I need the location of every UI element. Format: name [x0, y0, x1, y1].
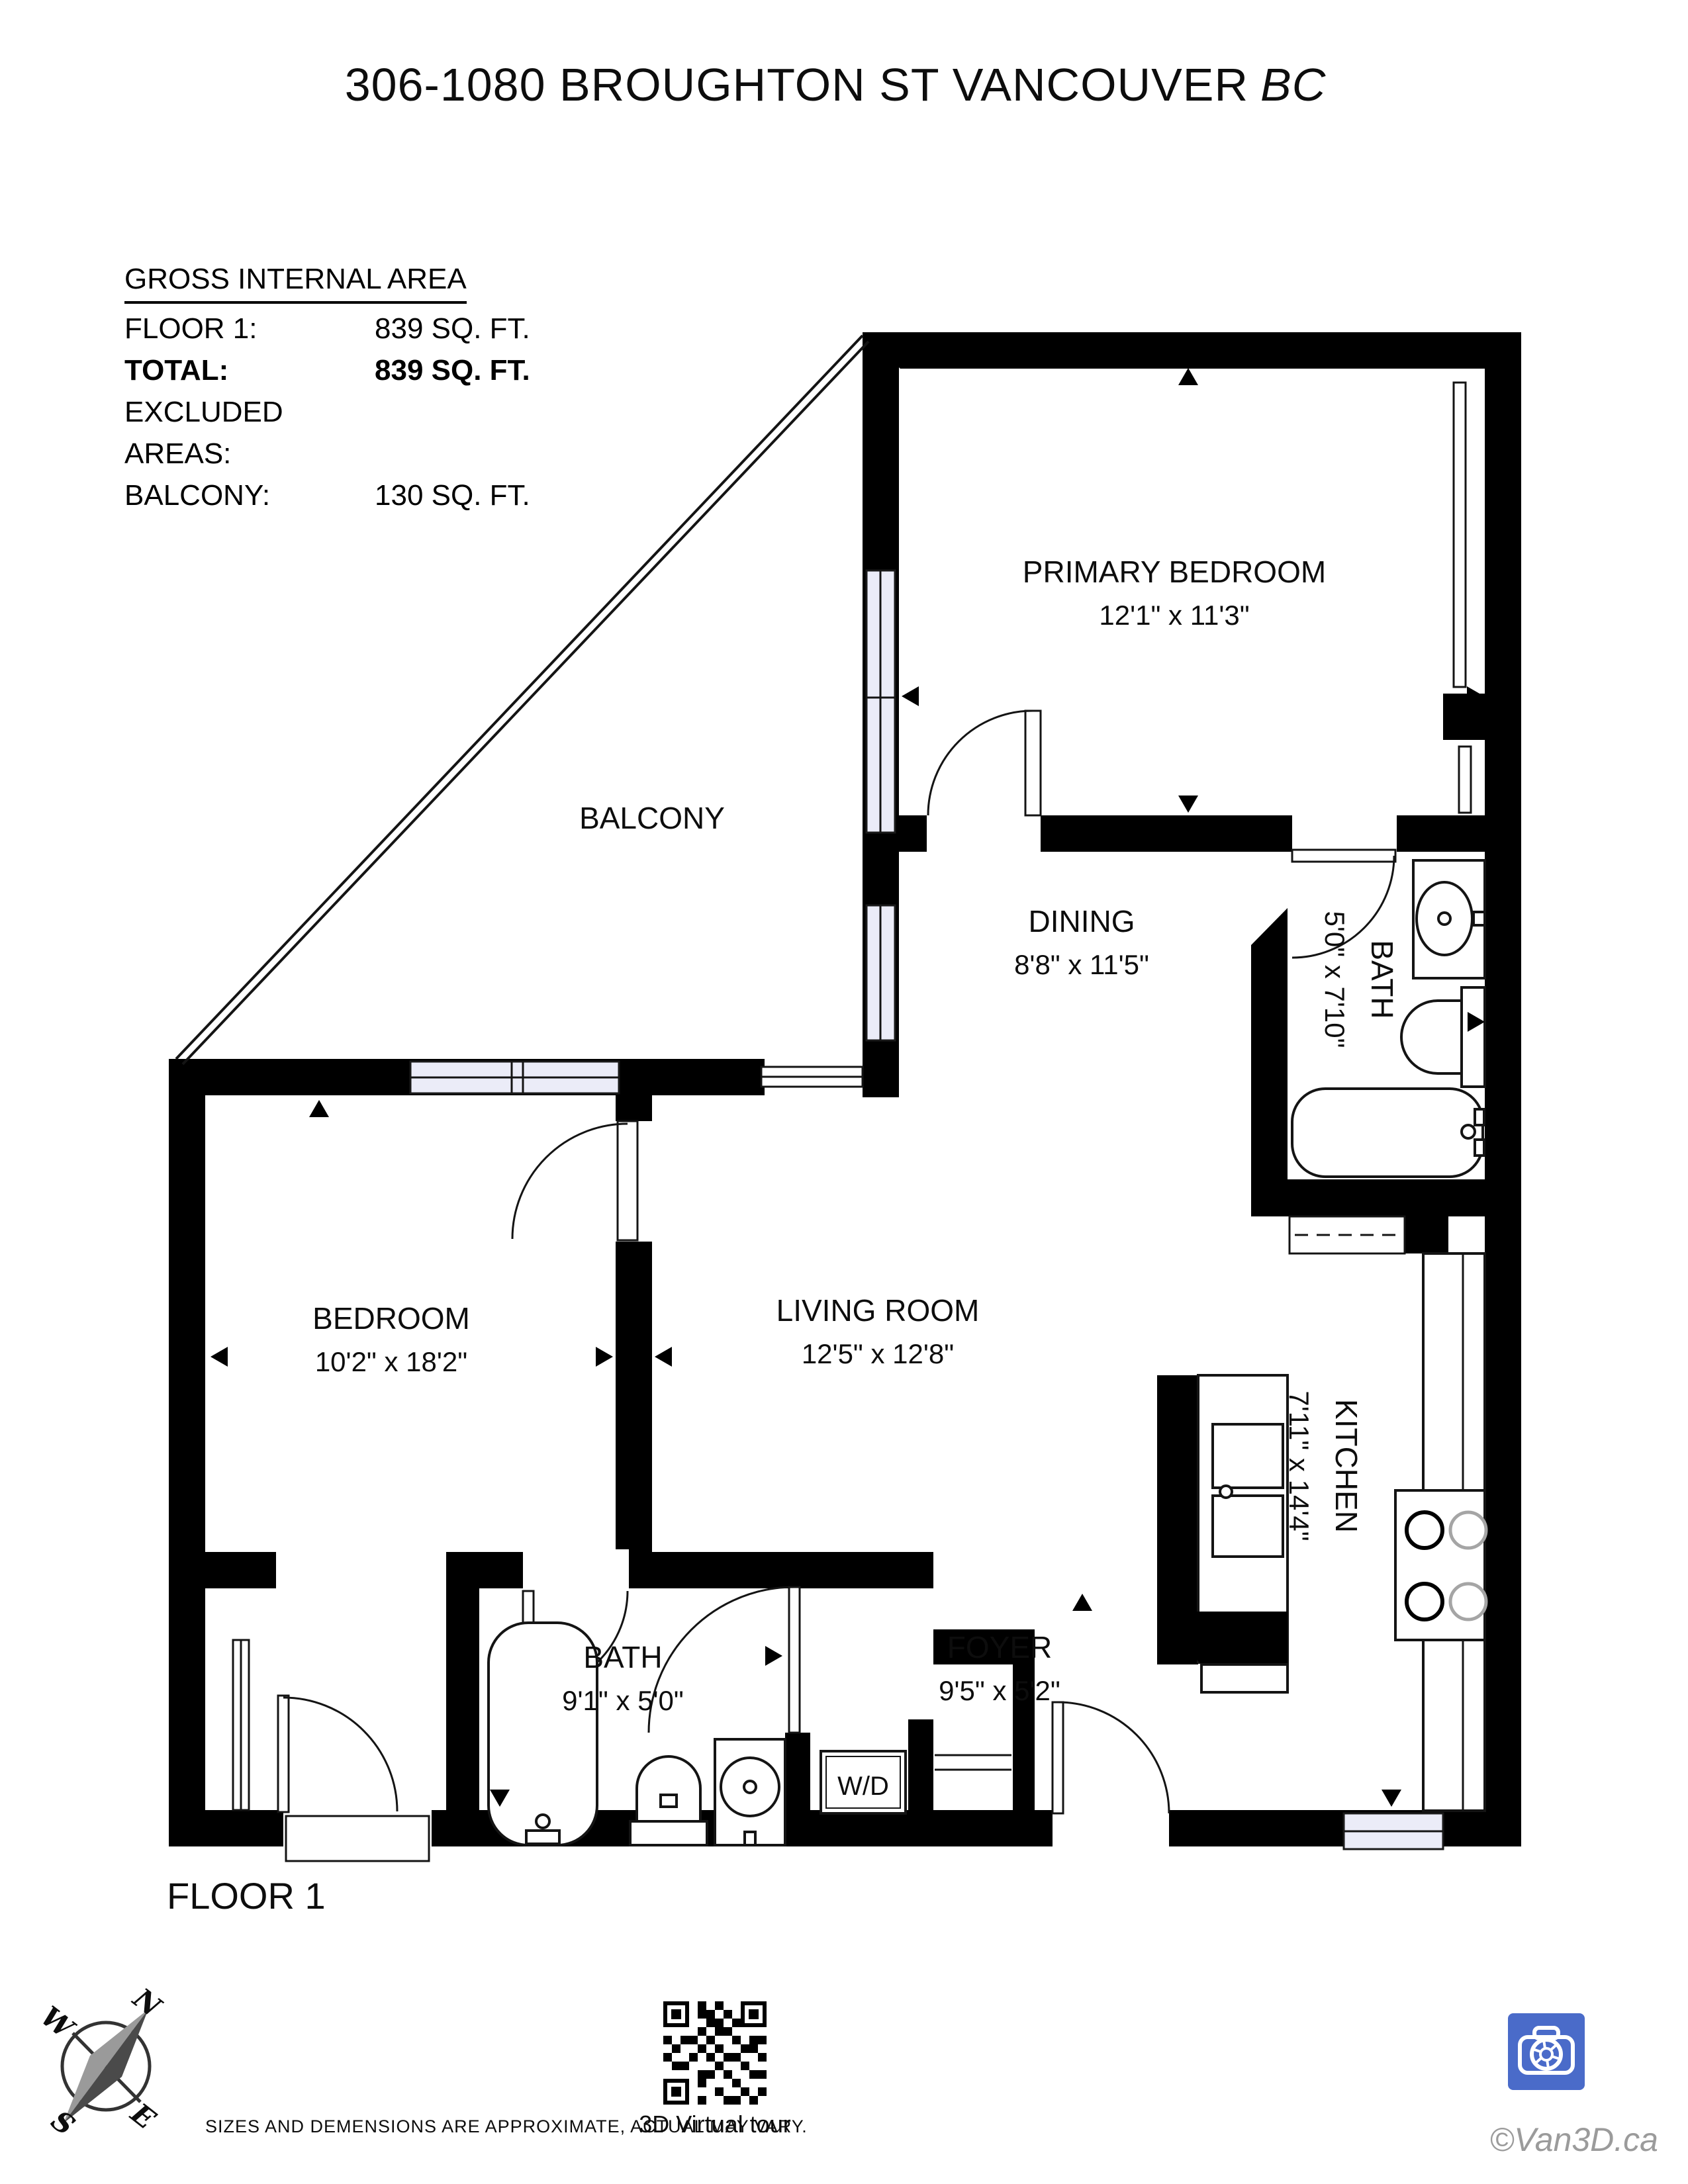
label-bath1: BATH: [1365, 940, 1399, 1019]
compass-n: N: [126, 1981, 168, 2023]
area-row-label: EXCLUDED AREAS:: [124, 391, 375, 475]
dims-living-room: 12'5" x 12'8": [802, 1338, 954, 1369]
island-sink: [1213, 1496, 1283, 1557]
bath2-toilet-tank: [630, 1821, 707, 1845]
label-foyer: FOYER: [947, 1630, 1052, 1664]
area-row-balcony: BALCONY: 130 SQ. FT.: [124, 475, 628, 516]
primary-bedroom-door: [1025, 711, 1041, 815]
closet-sliding-panel: [1459, 747, 1471, 813]
wall-left: [169, 1059, 205, 1846]
bath2-toilet-bowl: [637, 1756, 700, 1821]
kitchen-closet: [1289, 1216, 1405, 1253]
wall-bath2-left: [446, 1552, 479, 1812]
bedroom-nook-door: [278, 1696, 289, 1812]
label-primary-bedroom: PRIMARY BEDROOM: [1023, 555, 1326, 589]
label-living-room: LIVING ROOM: [776, 1293, 980, 1328]
wall-bedroom-nook-stub: [169, 1552, 276, 1588]
bath1-faucet: [1474, 912, 1485, 925]
primary-closet: [1454, 383, 1471, 813]
area-row-excluded: EXCLUDED AREAS:: [124, 391, 628, 475]
wall-living-bath-foyer: [446, 1552, 933, 1588]
area-row-total: TOTAL: 839 SQ. FT.: [124, 349, 628, 391]
bath2-faucet: [745, 1832, 755, 1845]
stove-burner: [1407, 1584, 1442, 1619]
area-summary: GROSS INTERNAL AREA FLOOR 1: 839 SQ. FT.…: [124, 258, 628, 516]
dims-bedroom: 10'2" x 18'2": [315, 1346, 467, 1377]
wall-bath2-right-lower: [785, 1733, 810, 1812]
area-row-label: BALCONY:: [124, 475, 375, 516]
dims-primary-bedroom: 12'1" x 11'3": [1099, 600, 1249, 631]
title-region: BC: [1260, 59, 1326, 111]
title-address: 306-1080 BROUGHTON ST VANCOUVER: [345, 59, 1248, 111]
label-balcony: BALCONY: [579, 801, 725, 835]
wall-bath1-left: [1251, 908, 1288, 1216]
island-faucet: [1220, 1486, 1232, 1498]
kitchen-fixtures: [1157, 1253, 1486, 1811]
bath2-tub: [489, 1623, 597, 1845]
bath1-tub-faucet: [1462, 1125, 1475, 1138]
van3d-logo: [1508, 2013, 1585, 2090]
bedroom-door: [618, 1121, 637, 1240]
compass-rose: N W S E: [35, 1981, 168, 2142]
closet-sliding-panel: [1454, 383, 1466, 687]
wall-top: [863, 332, 1521, 369]
dims-foyer: 9'5" x 5'2": [939, 1675, 1060, 1706]
stove-burner: [1407, 1512, 1442, 1548]
bath1-door: [1292, 850, 1395, 862]
entry-door: [1053, 1702, 1063, 1813]
wall-kitchen-closet-stub: [1405, 1216, 1448, 1253]
area-row-value: 130 SQ. FT.: [375, 475, 530, 516]
compass-w: W: [35, 2000, 81, 2046]
island-sink: [1213, 1424, 1283, 1488]
bath1-tub: [1292, 1089, 1483, 1177]
wall-bath1-bottom: [1251, 1179, 1485, 1216]
watermark-text: ©Van3D.ca: [1489, 2121, 1658, 2158]
bath2-foyer-door: [789, 1587, 800, 1733]
wall-primary-closet-divider: [1443, 694, 1485, 740]
bath1-toilet-bowl: [1401, 1001, 1462, 1073]
floor-label: FLOOR 1: [167, 1875, 326, 1917]
dims-kitchen: 7'11" x 14'4": [1284, 1390, 1315, 1541]
stove-burner: [1450, 1584, 1486, 1619]
wall-wd-right-stub: [908, 1719, 933, 1812]
bath2-tub-faucet: [536, 1815, 549, 1828]
wall-right: [1485, 332, 1521, 1846]
qr-code: [663, 2001, 767, 2105]
area-row-floor1: FLOOR 1: 839 SQ. FT.: [124, 308, 628, 349]
area-row-value: 839 SQ. FT.: [375, 308, 530, 349]
area-row-label: FLOOR 1:: [124, 308, 375, 349]
area-summary-heading: GROSS INTERNAL AREA: [124, 258, 467, 304]
label-bedroom: BEDROOM: [312, 1301, 470, 1336]
island-end-counter: [1201, 1664, 1288, 1692]
dims-dining: 8'8" x 11'5": [1014, 949, 1149, 980]
area-row-label: TOTAL:: [124, 349, 375, 391]
area-row-value: 839 SQ. FT.: [375, 349, 530, 391]
bath2-toilet-button: [661, 1795, 677, 1807]
bath1-toilet-tank: [1462, 987, 1485, 1087]
dims-bath2: 9'1" x 5'0": [562, 1685, 684, 1716]
qr-caption: 3D Virtual tour: [639, 2111, 790, 2138]
label-kitchen: KITCHEN: [1329, 1399, 1364, 1533]
dims-bath1: 5'0" x 7'10": [1319, 911, 1350, 1048]
stove-burner: [1450, 1512, 1486, 1548]
bedroom-nook-step: [286, 1816, 429, 1861]
page-title: 306-1080 BROUGHTON ST VANCOUVERBC: [345, 59, 1327, 111]
label-dining: DINING: [1029, 904, 1135, 938]
label-washer-dryer: W/D: [837, 1772, 889, 1801]
label-bath2: BATH: [583, 1640, 662, 1674]
